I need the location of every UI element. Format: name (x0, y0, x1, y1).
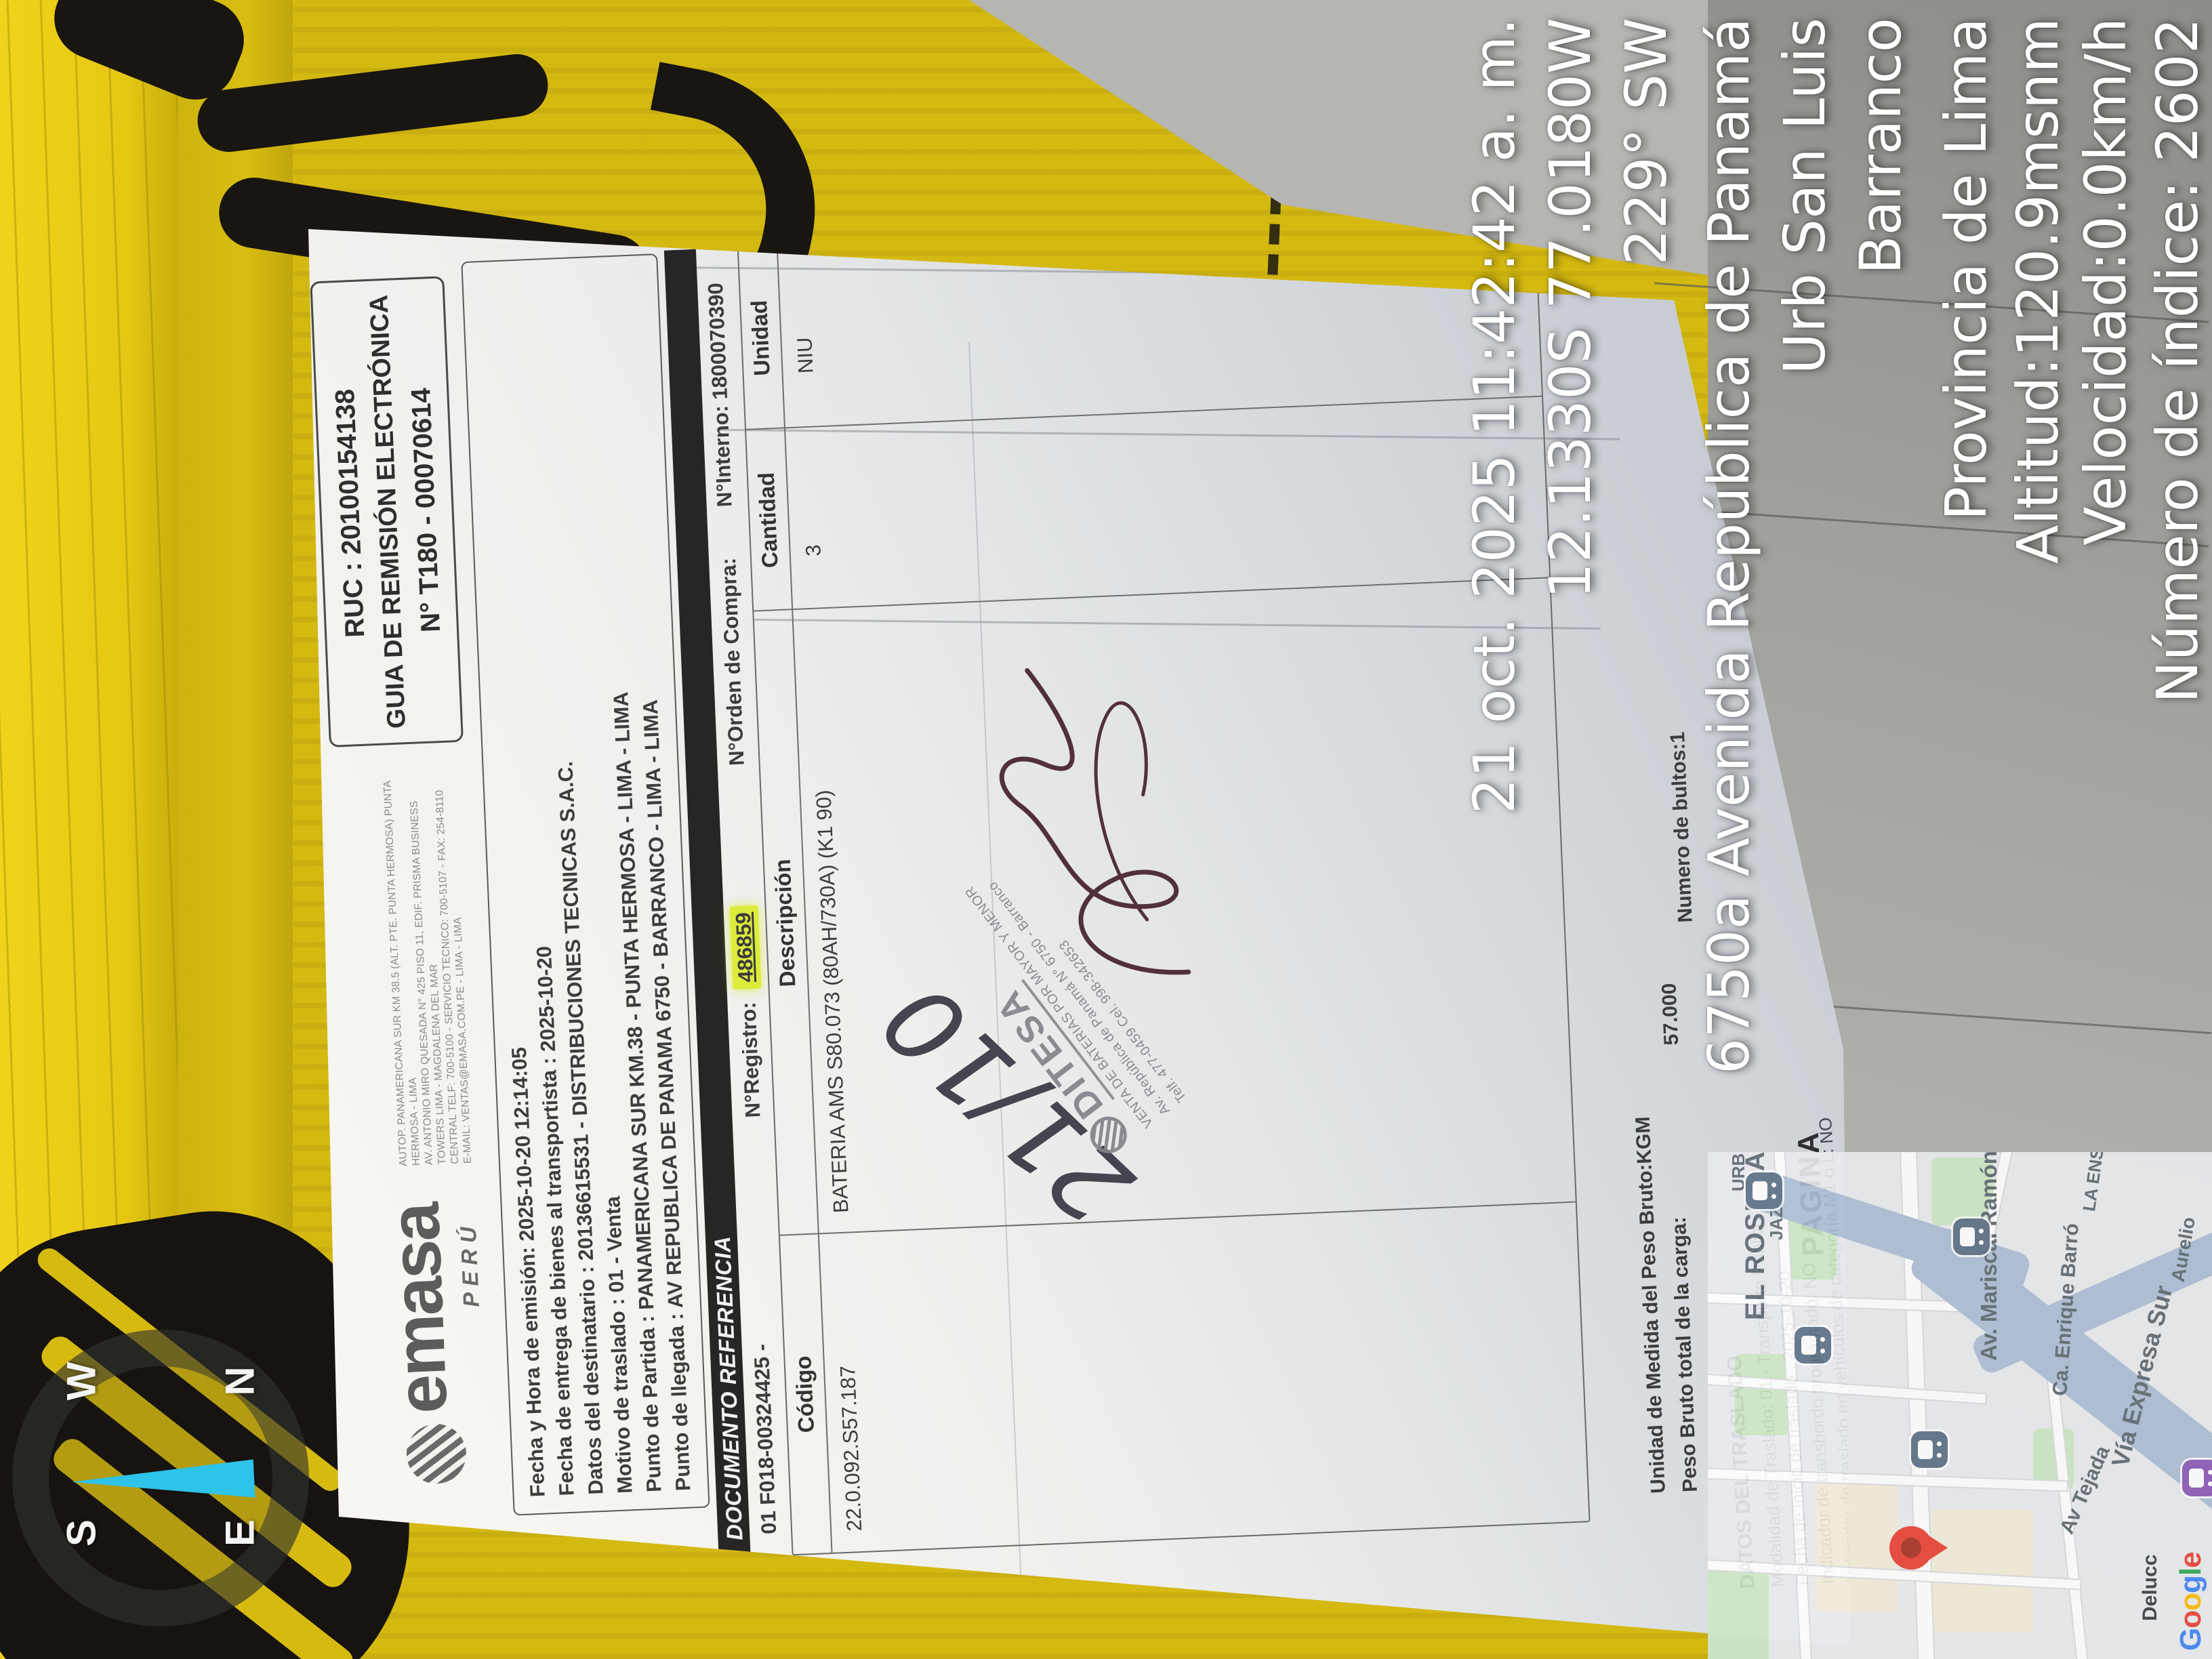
transit-station-icon (1746, 1172, 1782, 1209)
table-column-line (754, 577, 1549, 611)
brand-logo: emasa (375, 1203, 464, 1416)
map-label: Av. Mariscal Ramón C (1976, 1152, 2002, 1361)
overlay-address-province: Provincia de Lima (1933, 18, 1999, 520)
overlay-address-district: Barranco (1847, 18, 1914, 274)
shipping-document: emasa PERÚ AUTOP. PANAMERICANA SUR KM 38… (291, 195, 1891, 1659)
table-column-line (780, 1202, 1576, 1236)
interno-number: N°Interno: 1800070390 (703, 283, 737, 508)
registro-label: N°Registro: (736, 1002, 765, 1118)
compass-widget: S W E N (12, 1330, 309, 1626)
transit-station-icon (1795, 1327, 1831, 1364)
transit-station-icon (1911, 1431, 1948, 1468)
map-block (1931, 1510, 2033, 1632)
item-codigo: 22.0.092.S57.187 (836, 1365, 867, 1532)
company-fine-print: AUTOP. PANAMERICANA SUR KM 38.5 (ALT. PT… (380, 750, 474, 1166)
document-content: emasa PERÚ AUTOP. PANAMERICANA SUR KM 38… (262, 156, 1921, 1659)
overlay-index-number: Número de índice: 2602 (2144, 18, 2211, 703)
overlay-coordinates: 12.1330S 77.0180W (1537, 18, 1603, 599)
referencia-header-label: DOCUMENTO REFERENCIA (710, 1235, 748, 1541)
item-cantidad: 3 (801, 544, 826, 557)
overlay-heading: 229° SW (1613, 18, 1679, 265)
compass-label-w: W (58, 1362, 105, 1401)
item-descripcion: BATERIA AMS S80.073 (80AH/730A) (K1 90) (811, 790, 853, 1214)
registro-highlight: 486859 (729, 905, 761, 989)
transit-station-icon (1953, 1218, 1990, 1255)
portrait-scene: emasa PERÚ AUTOP. PANAMERICANA SUR KM 38… (0, 0, 2212, 1659)
compass-label-e: E (217, 1519, 264, 1547)
table-column-line (746, 396, 1542, 430)
camera-photo: emasa PERÚ AUTOP. PANAMERICANA SUR KM 38… (0, 0, 2212, 1659)
peso-total-value: 57.000 (1658, 983, 1683, 1046)
col-header-unidad: Unidad (739, 246, 784, 430)
google-letter: o (2174, 1593, 2207, 1611)
compass-label-n: N (217, 1366, 264, 1395)
peso-unidad: Unidad de Medida del Peso Bruto:KGM (1632, 1116, 1671, 1494)
overlay-address-street: 6750a Avenida República de Panamá (1696, 18, 1762, 1074)
overlay-speed: Velocidad:0.0km/h (2072, 18, 2139, 546)
google-letter: e (2174, 1552, 2207, 1568)
ruc-box: RUC : 20100154138 GUIA DE REMISIÓN ELECT… (310, 276, 464, 747)
compass-label-s: S (58, 1519, 105, 1547)
referencia-doc-id: 01 F018-00324425 - (750, 1343, 782, 1534)
google-letter: G (2174, 1629, 2207, 1651)
overlay-altitude: Altitud:120.9msnm (2005, 18, 2071, 564)
map-location-pin (1889, 1526, 1933, 1570)
map-park (1708, 1564, 1769, 1659)
google-letter: l (2174, 1568, 2207, 1576)
col-header-cantidad: Cantidad (746, 428, 792, 611)
overlay-address-urb: Urb San Luis (1771, 18, 1838, 374)
google-letter: g (2174, 1576, 2207, 1593)
map-label: Delucc (2139, 1555, 2162, 1621)
peso-total-label: Peso Bruto total de la carga: (1668, 1216, 1702, 1493)
col-header-codigo: Código (780, 1234, 832, 1554)
numero-bultos: Numero de bultos:1 (1666, 731, 1698, 923)
google-letter: o (2174, 1611, 2207, 1629)
brand-country: PERÚ (455, 1221, 485, 1308)
map-block (1816, 1476, 1898, 1612)
orden-compra-label: N°Orden de Compra: (716, 557, 750, 766)
emasa-globe-icon (405, 1422, 468, 1485)
map-label: LA ENSEN (2078, 1152, 2112, 1213)
map-park (1735, 1354, 1789, 1435)
metro-station-icon (2182, 1460, 2212, 1496)
map-thumbnail: EL ROSEDA URB JAZM Av. Mariscal Ramón C … (1708, 1152, 2212, 1659)
overlay-timestamp: 21 oct. 2025 11:42:42 a. m. (1461, 18, 1528, 814)
google-logo: Google (2174, 1552, 2208, 1651)
col-header-descripcion: Descripción (754, 610, 818, 1236)
item-unidad: NIU (792, 337, 818, 374)
